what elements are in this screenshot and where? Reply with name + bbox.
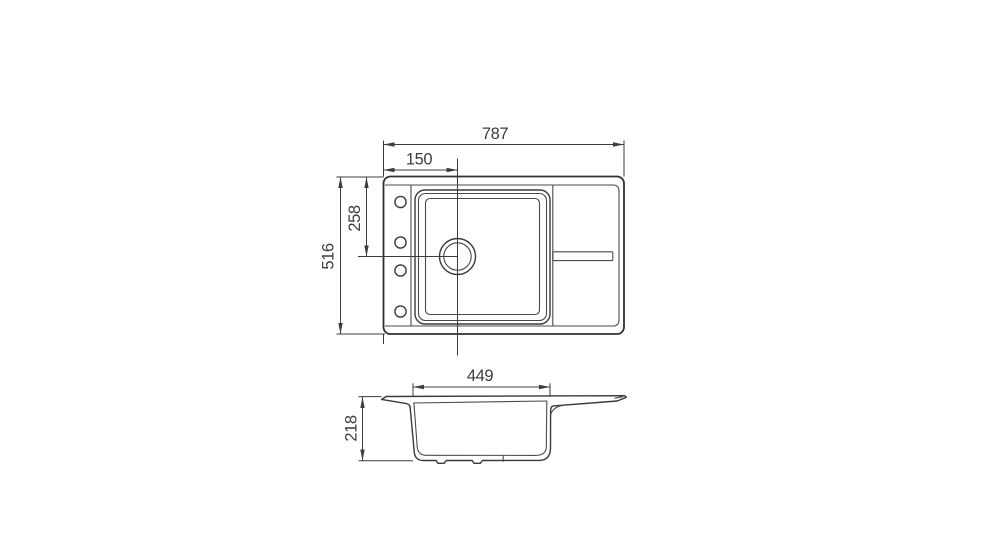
section-bowl-inner-surface bbox=[414, 401, 547, 455]
dim-overall-depth-label: 516 bbox=[320, 243, 338, 270]
drawing-canvas: 787 150 516 258 bbox=[0, 0, 1000, 550]
arrowhead-left bbox=[384, 142, 395, 146]
arrowhead-right bbox=[613, 142, 624, 146]
faucet-hole-4 bbox=[395, 306, 406, 317]
dim-drain-from-top-label: 258 bbox=[346, 205, 364, 232]
dim-extension-lines bbox=[337, 177, 386, 334]
arrowhead-top bbox=[338, 177, 342, 188]
arrowhead-bottom bbox=[338, 323, 342, 334]
arrowhead-left bbox=[384, 168, 395, 172]
dim-overall-depth: 516 bbox=[320, 177, 386, 334]
section-bowl-opening-line bbox=[413, 401, 547, 403]
dim-overall-width-label: 787 bbox=[482, 125, 509, 143]
section-view: 449 218 bbox=[343, 367, 627, 463]
dim-drain-from-top: 258 bbox=[346, 177, 369, 257]
arrowhead-right bbox=[447, 168, 458, 172]
faucet-hole-3 bbox=[395, 265, 406, 276]
dim-bowl-width: 449 bbox=[413, 367, 550, 397]
drainboard-slot bbox=[553, 252, 613, 261]
arrowhead-top bbox=[360, 397, 364, 408]
dim-drain-offset: 150 bbox=[384, 151, 458, 173]
dim-bowl-width-label: 449 bbox=[467, 367, 494, 385]
section-outer-profile bbox=[382, 396, 627, 464]
arrowhead-left bbox=[413, 385, 424, 389]
dim-extension-lines bbox=[413, 383, 550, 397]
faucet-hole-2 bbox=[395, 237, 406, 248]
dim-extension-lines bbox=[359, 397, 414, 461]
sink-outline bbox=[384, 177, 625, 335]
technical-drawing: 787 150 516 258 bbox=[0, 0, 1000, 550]
arrowhead-right bbox=[539, 385, 550, 389]
sink-inner-rim bbox=[385, 185, 619, 326]
faucet-hole-1 bbox=[395, 196, 406, 207]
dim-drain-offset-label: 150 bbox=[406, 151, 433, 169]
arrowhead-bottom bbox=[364, 246, 368, 257]
arrowhead-bottom bbox=[360, 450, 364, 461]
arrowhead-top bbox=[364, 177, 368, 188]
dim-bowl-depth-label: 218 bbox=[343, 415, 361, 442]
top-view: 787 150 516 258 bbox=[320, 125, 625, 356]
dim-bowl-depth: 218 bbox=[343, 397, 414, 461]
section-rim-tip-line bbox=[615, 397, 624, 399]
